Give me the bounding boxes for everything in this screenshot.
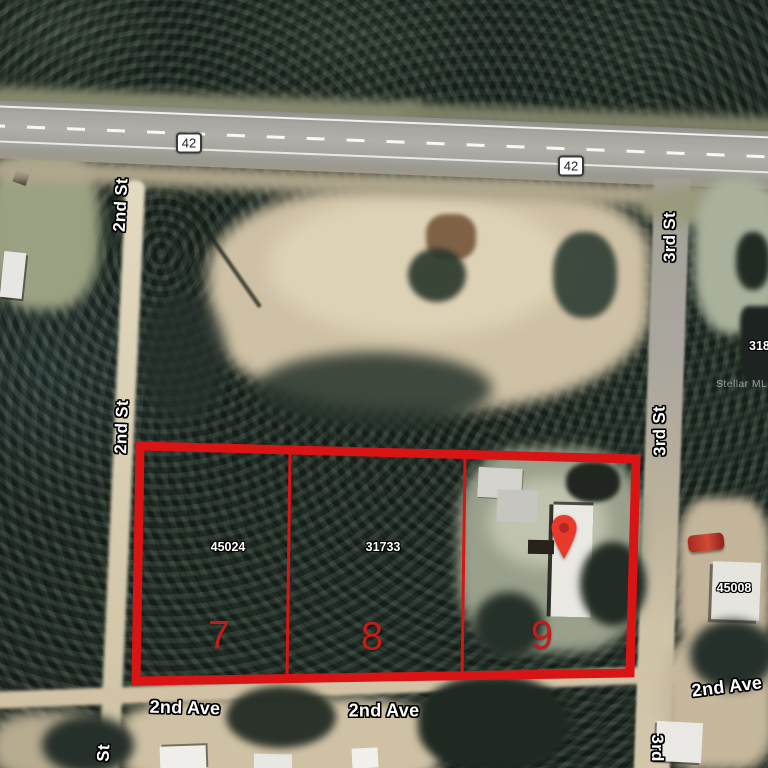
lot-number-label: 7 [208,614,230,659]
parcel-id-label: 31733 [366,540,401,554]
street-label-2nd-ave: 2nd Ave [149,697,220,720]
highway-shield-text: 42 [182,136,196,151]
street-label-3rd: 3rd [647,734,667,761]
street-label-2nd-st: 2nd St [110,178,133,233]
highway-42-shield: 42 [558,156,584,177]
pin-body [552,515,577,559]
street-label-2nd-st: 2nd St [111,400,133,454]
street-label-2nd-ave: 2nd Ave [349,701,420,722]
highway-shield-text: 42 [564,159,578,174]
parcel-outline-overlay [0,0,768,768]
parcel-id-label-clipped: 318 [749,339,768,353]
location-pin-icon [550,514,578,560]
lot-divider-8-9 [462,456,465,677]
street-label-3rd-st: 3rd St [660,212,680,262]
mls-watermark: Stellar MLS [716,378,768,390]
pin-hole [559,523,569,533]
satellite-map-photo: 42 42 2nd St 2nd St 3rd St 3rd St 2nd Av… [0,0,768,768]
lot-number-label: 8 [361,615,383,660]
highway-42-shield: 42 [176,133,202,154]
parcel-id-label: 45008 [717,581,752,595]
street-label-3rd-st: 3rd St [650,406,671,456]
lot-divider-7-8 [287,452,290,679]
lot-number-label: 9 [531,614,553,659]
parcel-id-label: 45024 [211,540,246,554]
street-label-st-partial: St [94,744,115,763]
